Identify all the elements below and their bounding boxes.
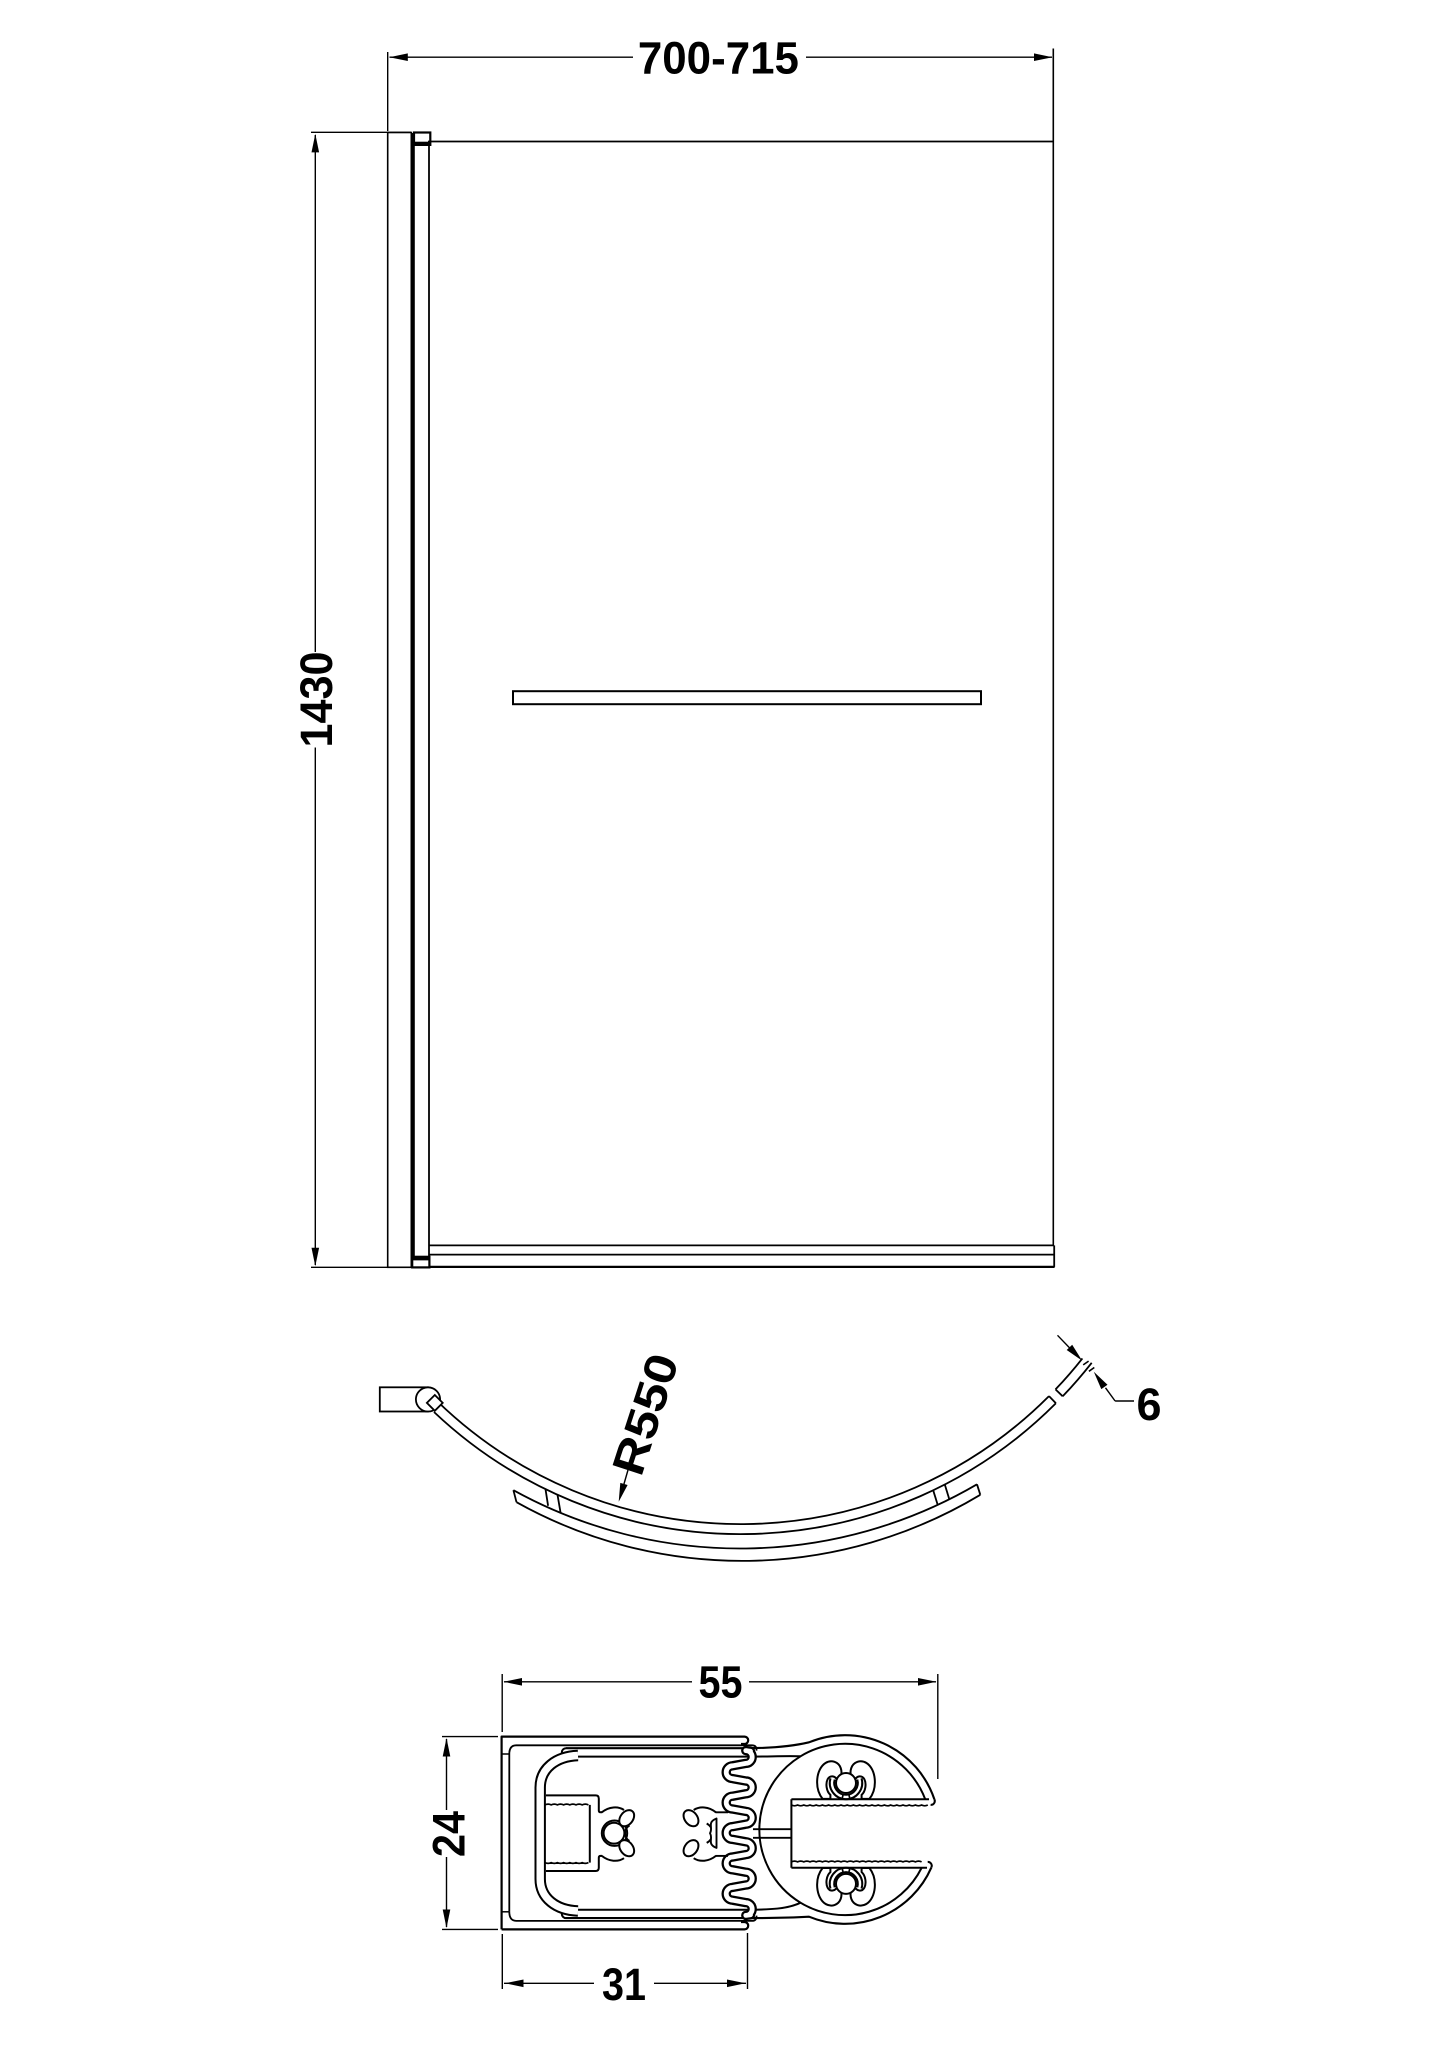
svg-text:1430: 1430 [291,652,342,748]
svg-text:24: 24 [424,1811,475,1857]
svg-text:6: 6 [1136,1379,1161,1430]
svg-text:31: 31 [602,1959,646,2010]
svg-text:55: 55 [699,1657,743,1708]
svg-text:700-715: 700-715 [638,33,799,84]
